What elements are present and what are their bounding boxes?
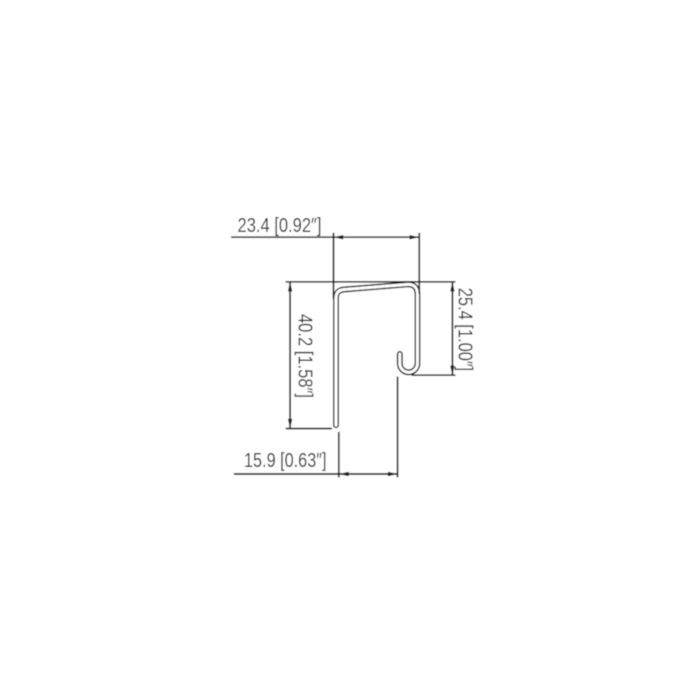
svg-text:23.4 [0.92″]: 23.4 [0.92″] <box>238 215 322 237</box>
svg-text:40.2 [1.58″]: 40.2 [1.58″] <box>294 314 316 398</box>
svg-text:25.4 [1.00″]: 25.4 [1.00″] <box>454 288 476 372</box>
svg-text:15.9 [0.63″]: 15.9 [0.63″] <box>244 450 327 472</box>
